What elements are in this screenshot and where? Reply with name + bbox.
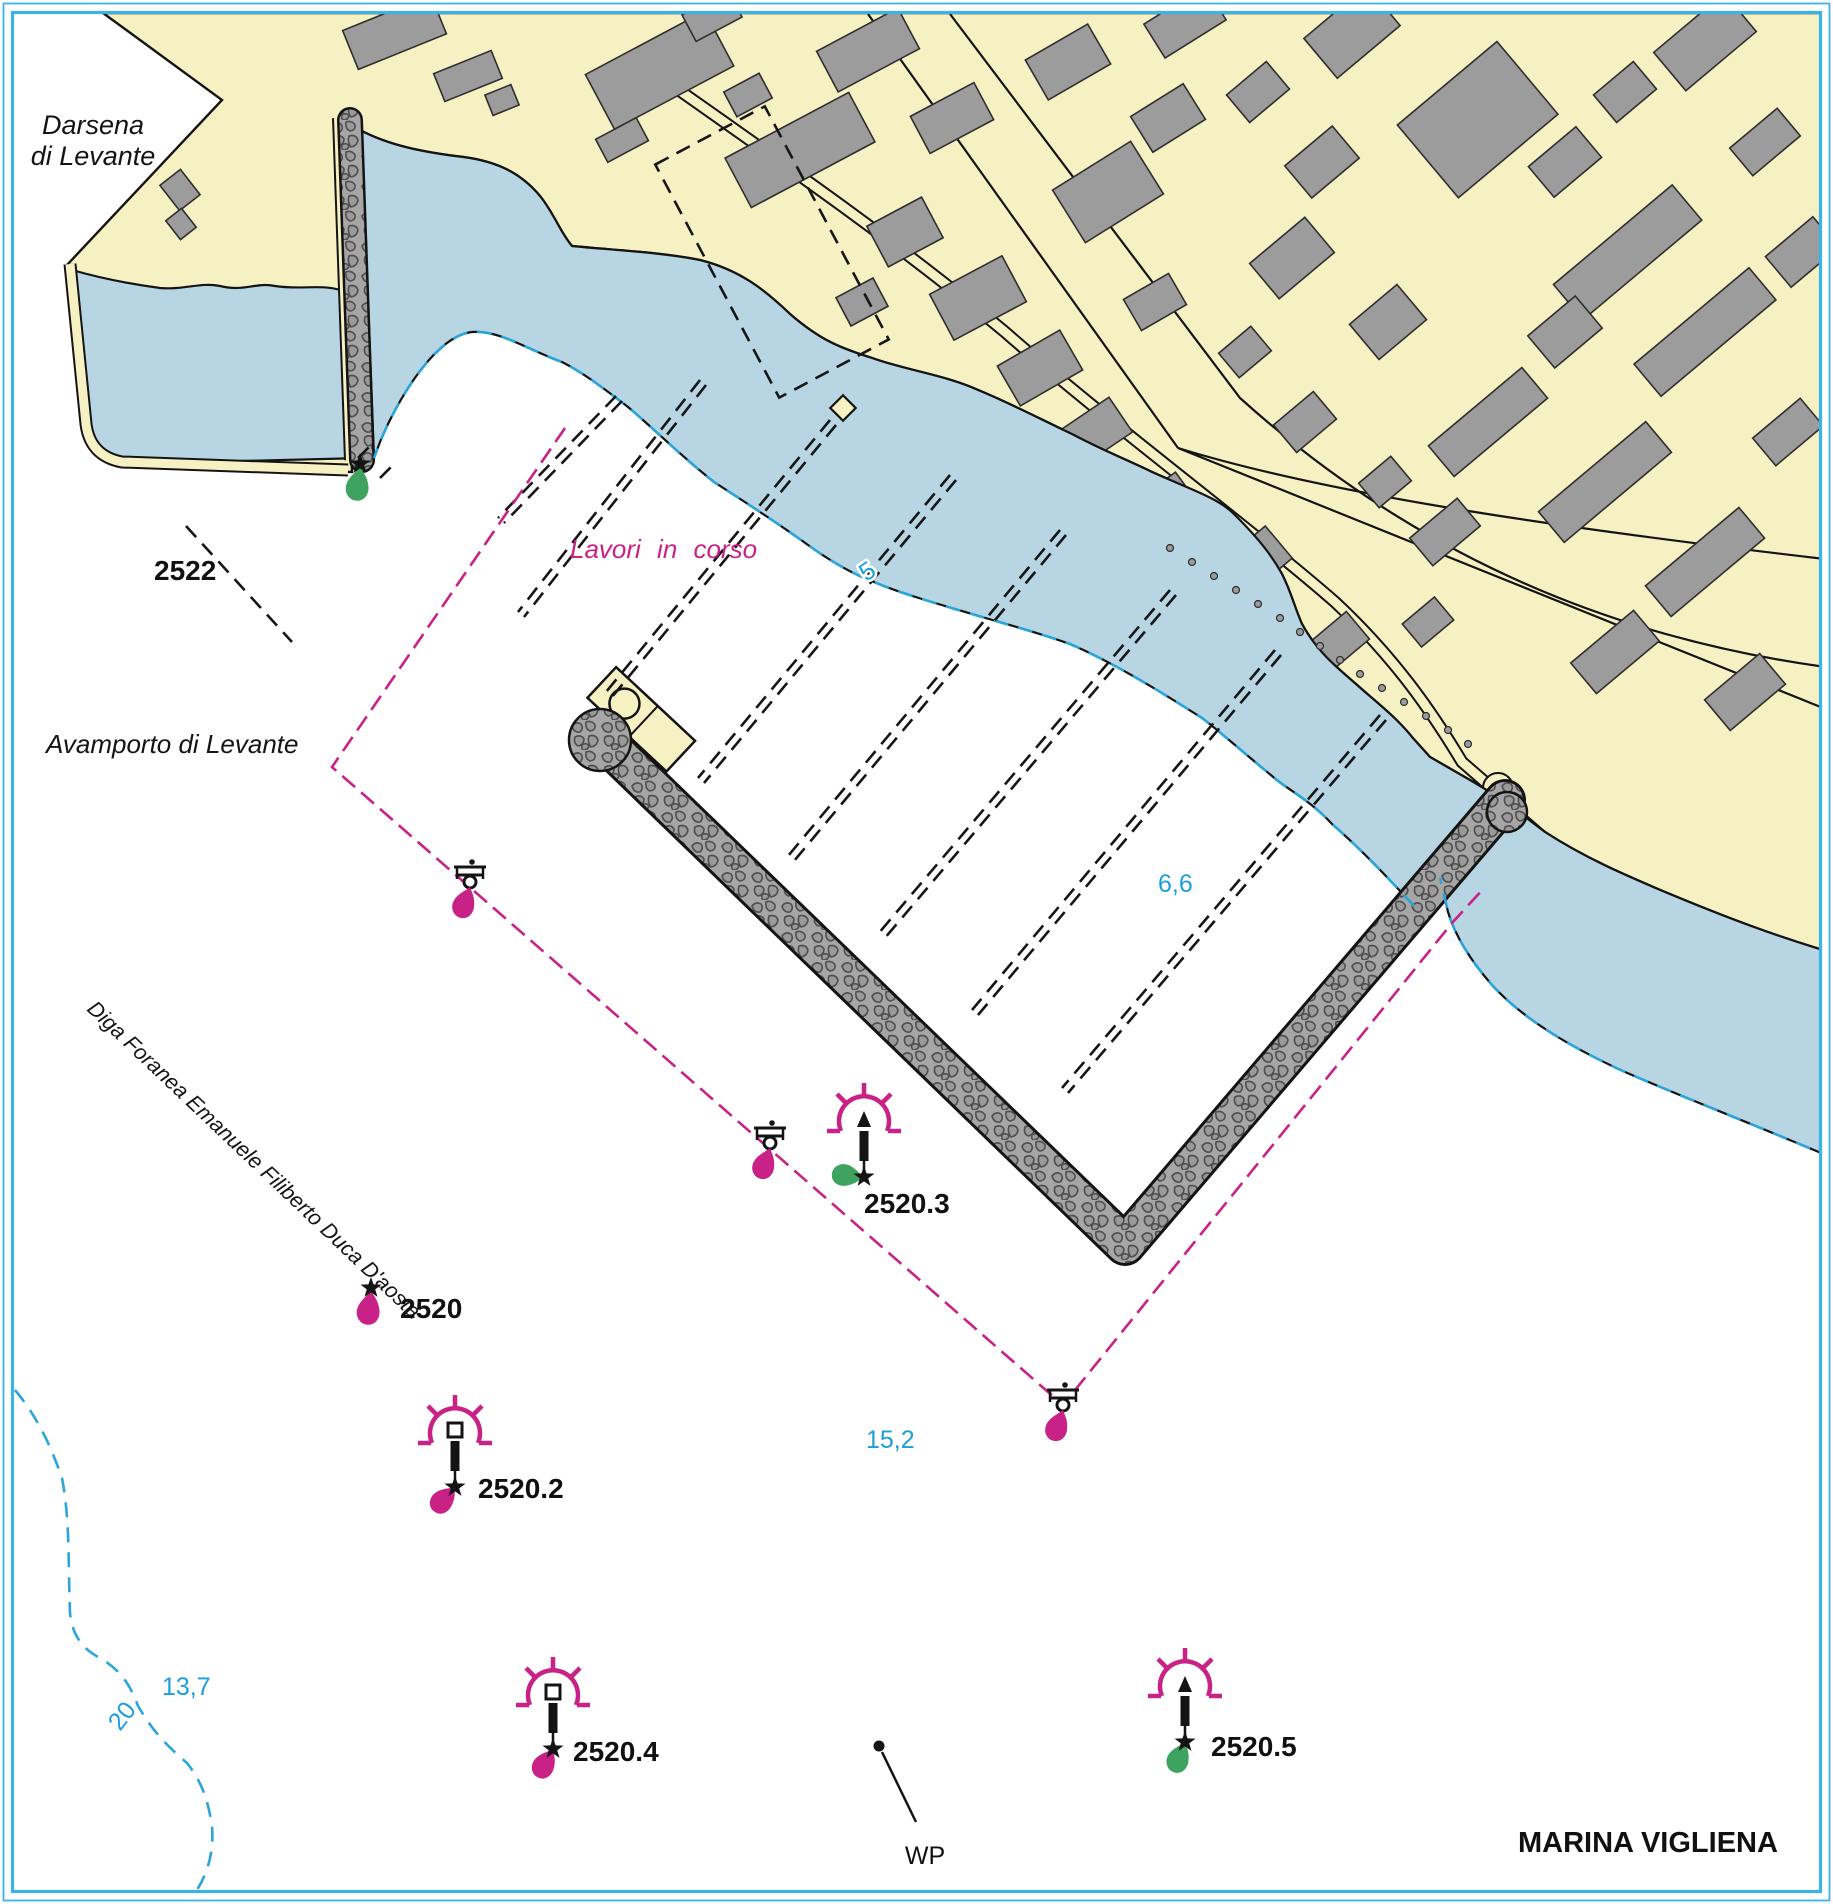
chart-title: MARINA VIGLIENA	[1518, 1827, 1778, 1859]
light-2520.3: 2520.3	[827, 1083, 950, 1219]
depth-label: 13,7	[162, 1673, 211, 1701]
cone-topmark-icon	[1178, 1676, 1192, 1692]
depth-label: 6,6	[1158, 870, 1193, 898]
light-label: 2520.5	[1211, 1731, 1297, 1762]
place-label-darsena-2: di Levante	[31, 141, 156, 171]
beacon-marker	[750, 1120, 786, 1181]
nautical-chart: 2522 2520 2520.2	[0, 0, 1833, 1904]
depth-label: 15,2	[866, 1426, 915, 1454]
light-2520.5: 2520.5	[1148, 1648, 1297, 1775]
beacons	[450, 859, 1079, 1443]
place-label-diga-foranea: Diga Foranea Emanuele Filiberto Duca D'a…	[83, 996, 426, 1323]
waypoint: WP	[874, 1741, 946, 1871]
chart-canvas: 2522 2520 2520.2	[0, 0, 1833, 1904]
place-label-avamporto: Avamporto di Levante	[44, 729, 298, 759]
map-content: 2522 2520 2520.2	[15, 0, 1833, 1890]
light-label: 2520.3	[864, 1188, 950, 1219]
light-label: 2520.4	[573, 1736, 659, 1767]
breakwater-head-mound	[569, 709, 631, 771]
beacon-marker	[1043, 1382, 1079, 1443]
square-topmark-icon	[448, 1423, 462, 1437]
light-2520.4: 2520.4	[516, 1657, 659, 1782]
square-topmark-icon	[546, 1685, 560, 1699]
light-2520.2: 2520.2	[418, 1395, 564, 1518]
darsena-basin-water	[72, 270, 364, 462]
waypoint-label: WP	[905, 1842, 945, 1870]
light-label: 2522	[154, 555, 216, 586]
works-note-label: Lavori in corso	[570, 534, 757, 564]
place-label-darsena-1: Darsena	[42, 110, 144, 140]
beacon-marker	[450, 859, 486, 920]
light-label: 2520.2	[478, 1473, 564, 1504]
cone-topmark-icon	[857, 1111, 871, 1127]
contour-20m	[15, 1390, 212, 1890]
waypoint-dot-icon	[874, 1741, 885, 1752]
breakwater-root-mound	[1487, 792, 1527, 832]
